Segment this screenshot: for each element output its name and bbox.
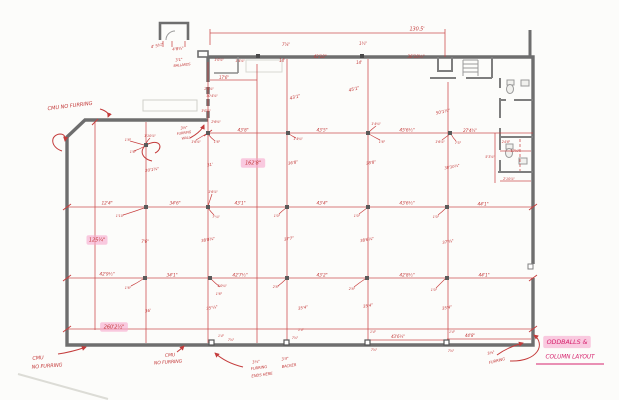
annotation-labels-layer: 4' 5¾"4'8¾"3'1"BALLARDS1'0⅝"1'4⅝"17'6"2'… [31, 27, 595, 379]
dimension-label: 1'4¾" [293, 137, 303, 141]
dimension-label: 1'10⅞" [144, 134, 156, 138]
dimension-label: 1'0" [274, 214, 281, 218]
dimension-label: 35'4" [363, 302, 374, 309]
dimension-label: 1'8" [125, 138, 132, 142]
dimension-label: 38'10¼" [444, 163, 460, 171]
dimension-label: 1'4" [370, 330, 377, 334]
dimension-label: 2'8" [273, 285, 280, 289]
dimension-label: 43'6¼" [391, 334, 405, 339]
floorplan-drawing: 4' 5¾"4'8¾"3'1"BALLARDS1'0⅝"1'4⅝"17'6"2'… [0, 0, 619, 400]
note-label: COLUMN LAYOUT [546, 355, 596, 361]
dimension-label: 34'1" [166, 273, 177, 279]
dimension-label: 1'4" [298, 328, 305, 332]
dimension-label: 260'2½" [104, 324, 125, 331]
dimension-label: 36'10½" [407, 54, 424, 59]
structural-columns [143, 54, 452, 280]
dimension-label: 1'0" [431, 288, 438, 292]
dimension-label: 4' 5¾" [150, 42, 164, 50]
dimension-label: 17⅞" [511, 149, 520, 153]
dimension-label: 36'8" [288, 159, 299, 166]
dimension-label: 1'6⅞" [435, 140, 445, 144]
dimension-label: 14' [279, 58, 285, 63]
dimension-label: 2'10⅞" [503, 177, 515, 181]
dimension-label: 1'4⅝" [235, 59, 245, 63]
dimension-label: CMU [32, 355, 44, 362]
dimension-label: 43'1" [234, 201, 245, 207]
dimension-label: 3'1" [175, 57, 183, 63]
dimension-label: 7⅞" [282, 42, 290, 47]
dimension-label: 44'1" [478, 273, 489, 279]
dimension-label: 7'¼" [212, 215, 220, 219]
vestibule-door-swing [166, 31, 175, 40]
dimension-label: 14' [356, 60, 362, 65]
dimension-label: 43'5" [316, 128, 327, 134]
dimension-label: 1'4¾" [371, 122, 381, 126]
dimension-label: 1¾" [359, 41, 367, 46]
dimension-label: 43'1" [289, 93, 301, 102]
dimension-label: 130.5' [409, 27, 424, 33]
dimension-label: 1'6" [125, 286, 132, 290]
dimension-label: 42'7½" [232, 272, 247, 279]
dimension-label: 2'0⅝" [204, 87, 214, 91]
dimension-label: CMU [165, 352, 176, 359]
dimension-label: 7⅞" [371, 348, 378, 352]
scanned-floorplan-page: 4' 5¾"4'8¾"3'1"BALLARDS1'0⅝"1'4⅝"17'6"2'… [0, 0, 619, 400]
dimension-label: 38'8" [366, 159, 377, 166]
dimension-label: 35'4" [442, 304, 453, 311]
dimension-label: 43'2" [316, 273, 327, 279]
note-label: ODDBALLS & [547, 338, 588, 346]
dimension-label: 2'8" [349, 287, 356, 291]
dimension-label: 31' [206, 161, 213, 167]
entry-notch [198, 51, 208, 57]
dimension-label: 37'¾" [442, 238, 454, 245]
dimension-label: 7⅞" [448, 349, 455, 353]
dimension-label: 1'4" [218, 334, 225, 338]
dimension-label: 125¼" [89, 238, 105, 244]
dimension-label: 1'6" [216, 292, 223, 296]
dimension-label: 30'4⅝" [206, 94, 218, 98]
dimension-label: ENDS HERE [251, 370, 273, 378]
dimension-label: 38'6¼" [360, 236, 375, 243]
dimension-label: 45'1" [348, 85, 360, 94]
dimension-label: FURRING [488, 356, 505, 365]
dimension-label: 17'6" [219, 75, 229, 80]
main-outline-wall [67, 57, 533, 345]
dimension-label: 2'6⅜" [211, 120, 221, 124]
dimension-label: CMU NO FURRING [47, 101, 93, 112]
dimension-label: 43'6½" [399, 200, 414, 207]
dimension-label: NO FURRING [154, 358, 183, 366]
dimension-label: 24'8" [502, 140, 511, 144]
dimension-label: BACKER [281, 362, 297, 369]
dimension-label: 162'8" [245, 161, 261, 167]
dimension-label: 1'0¾" [217, 284, 227, 288]
dimension-label: 12'4" [101, 201, 112, 207]
dimension-label: 42'9½" [99, 271, 114, 278]
dimension-label: 1'10" [116, 214, 125, 218]
dimension-label: 44'1" [477, 202, 488, 208]
dimension-label: FURRING [250, 364, 267, 371]
dimension-label: 45'6½" [399, 127, 414, 134]
dimension-label: 35'¼" [206, 304, 218, 311]
dimension-label: 35'4" [298, 304, 309, 311]
red-dimension-grid [67, 29, 533, 343]
highlighter-layer [87, 158, 591, 348]
dimension-label: 1'6" [214, 140, 221, 144]
dimension-label: 1'6" [130, 150, 137, 154]
dimension-label: 1'0" [433, 215, 440, 219]
dimension-label: 4'8¾" [172, 45, 184, 51]
dimension-label: 43'4" [316, 201, 327, 207]
dimension-label: 1'6⅝" [191, 140, 201, 144]
stairs [463, 60, 478, 76]
dimension-label: 36' [145, 308, 152, 314]
dimension-label: 42'8½" [399, 272, 414, 279]
dimension-label: WALL [181, 135, 191, 140]
dimension-label: 27'4¾" [463, 128, 477, 133]
dimension-label: 7⅞" [292, 336, 299, 340]
pencil-lines [143, 60, 282, 111]
scan-shadow [18, 374, 108, 399]
dimension-label: 3'4" [281, 355, 289, 361]
dimension-label: 3⅛" [252, 358, 261, 364]
dimension-label: 7'5" [455, 141, 462, 145]
dimension-label: 1'0⅝" [214, 58, 224, 62]
dimension-label: 37'7" [284, 235, 295, 242]
dimension-label: 1'0" [354, 214, 361, 218]
dimension-label: NO FURRING [31, 362, 62, 370]
dimension-label: 1'6⅞" [208, 190, 218, 194]
dimension-label: 3⅛" [487, 349, 496, 356]
dimension-label: 43'10" [313, 54, 326, 59]
dimension-label: 1'4" [449, 330, 456, 334]
dimension-label: 3'0⅝" [201, 109, 211, 113]
dimension-label: 7⅞" [228, 338, 235, 342]
dimension-label: 44'8" [465, 333, 475, 338]
dimension-label: BALLARDS [173, 62, 191, 68]
dimension-label: 20'1¾" [145, 166, 160, 173]
dimension-label: 43'8" [237, 128, 248, 134]
dimension-label: 5'3⅝" [485, 155, 495, 159]
dimension-label: 1'6" [379, 140, 386, 144]
dimension-label: 7'6" [141, 239, 149, 244]
dimension-label: 34'6" [169, 201, 180, 207]
